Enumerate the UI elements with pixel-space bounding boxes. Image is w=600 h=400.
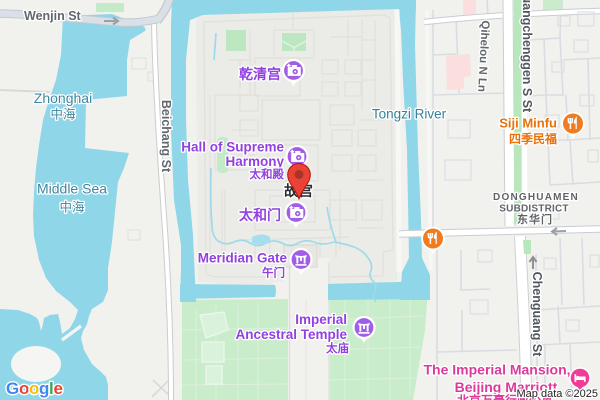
svg-text:太和门: 太和门 [239, 207, 281, 223]
svg-text:o: o [29, 379, 39, 398]
svg-text:Chenguang St: Chenguang St [530, 272, 544, 358]
svg-text:Zhonghai: Zhonghai [34, 90, 92, 106]
svg-text:Ancestral Temple: Ancestral Temple [235, 327, 347, 342]
svg-text:SUBDISTRICT: SUBDISTRICT [499, 204, 568, 215]
svg-text:Hall of Supreme: Hall of Supreme [181, 140, 284, 155]
svg-text:The Imperial Mansion,: The Imperial Mansion, [423, 362, 570, 378]
svg-text:Middle Sea: Middle Sea [37, 181, 107, 197]
svg-text:DONGHUAMEN: DONGHUAMEN [493, 192, 579, 203]
svg-text:中海: 中海 [50, 107, 76, 122]
svg-text:午门: 午门 [262, 266, 285, 280]
svg-text:东华门: 东华门 [517, 212, 553, 226]
svg-text:e: e [54, 379, 63, 398]
svg-text:Harmony: Harmony [225, 154, 284, 169]
svg-text:Beichang St: Beichang St [159, 100, 173, 173]
svg-text:G: G [6, 379, 19, 398]
svg-text:Guangchenggen S St: Guangchenggen S St [520, 0, 534, 113]
svg-text:太和殿: 太和殿 [249, 167, 285, 181]
svg-text:Wenjin St: Wenjin St [24, 9, 82, 23]
svg-text:太庙: 太庙 [325, 341, 349, 355]
svg-text:Tongzi River: Tongzi River [372, 107, 447, 122]
svg-text:Meridian Gate: Meridian Gate [198, 251, 288, 266]
svg-text:g: g [39, 379, 49, 398]
svg-text:乾清宫: 乾清宫 [239, 66, 281, 82]
svg-text:中海: 中海 [59, 200, 85, 215]
svg-text:Imperial: Imperial [295, 312, 347, 327]
svg-text:o: o [19, 379, 29, 398]
svg-text:四季民福: 四季民福 [509, 131, 557, 146]
svg-text:Map data ©2025: Map data ©2025 [517, 388, 599, 400]
svg-text:Siji Minfu: Siji Minfu [499, 116, 557, 131]
